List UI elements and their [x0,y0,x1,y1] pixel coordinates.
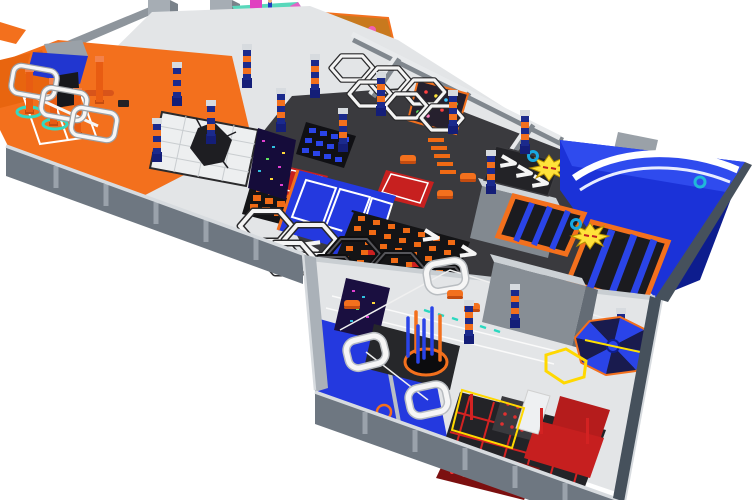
orange-ottoman [344,300,360,309]
trampoline-park-render [0,0,752,500]
orange-bench [437,190,453,199]
isometric-scene [0,0,752,500]
orange-bench [460,173,476,182]
orange-bench [400,155,416,164]
orange-column [25,66,34,114]
orange-ottoman [447,290,463,299]
orange-column [95,56,104,104]
